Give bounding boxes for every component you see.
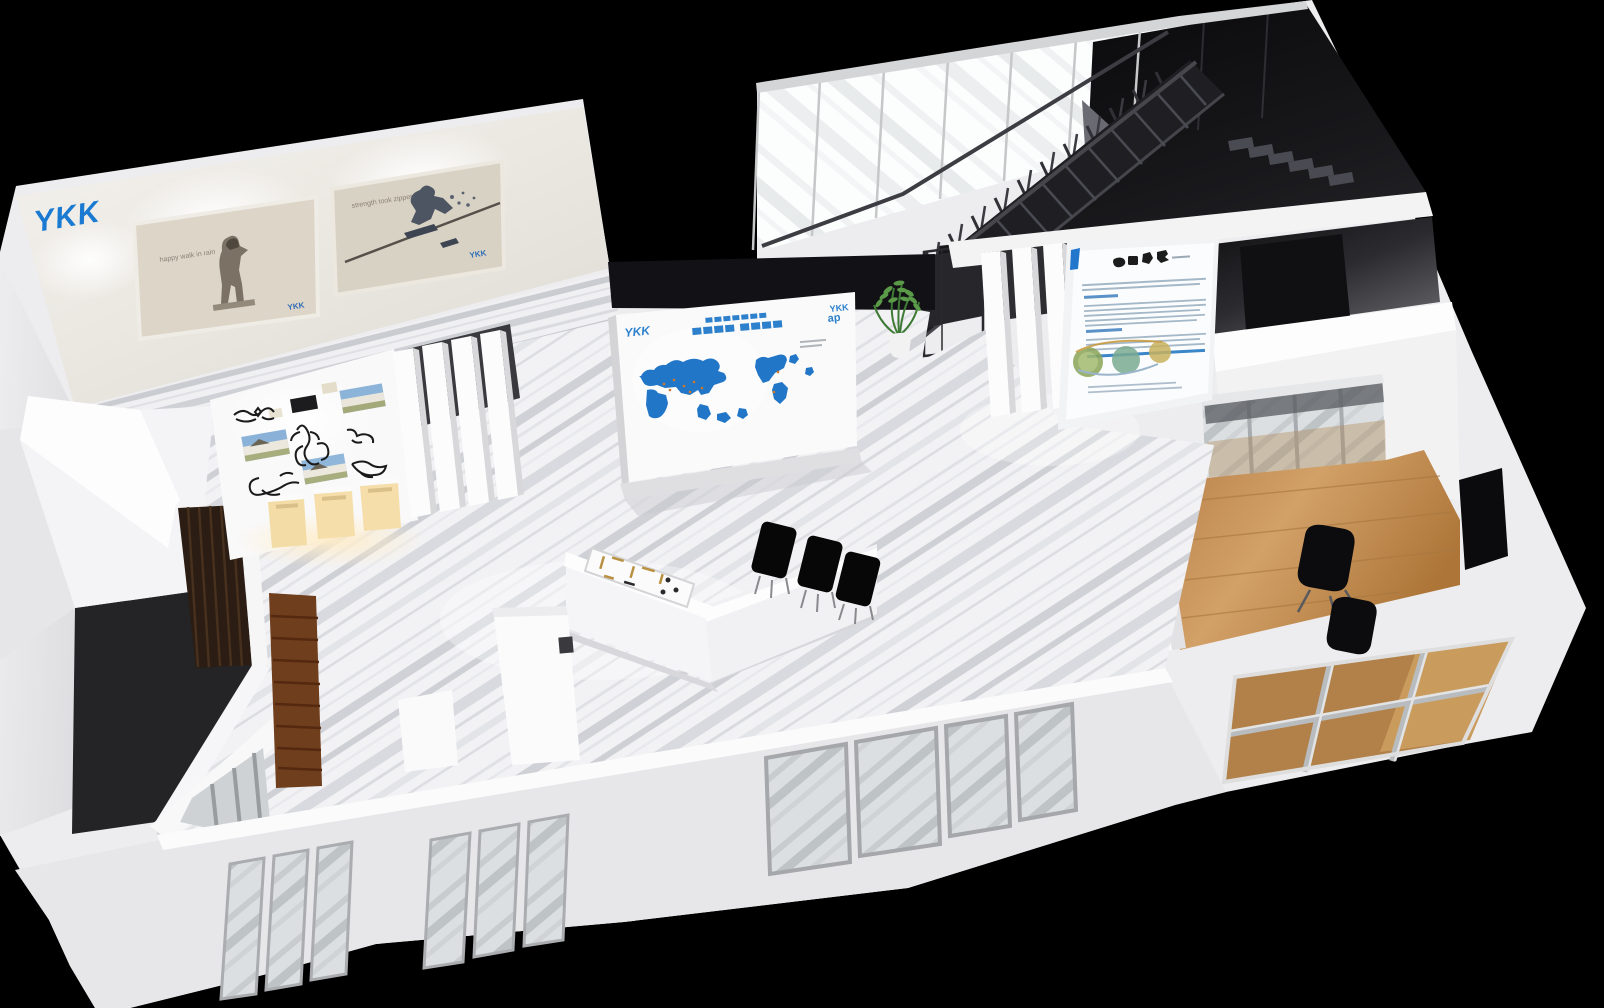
svg-text:YKK: YKK (624, 323, 652, 340)
svg-text:ap: ap (827, 312, 841, 325)
